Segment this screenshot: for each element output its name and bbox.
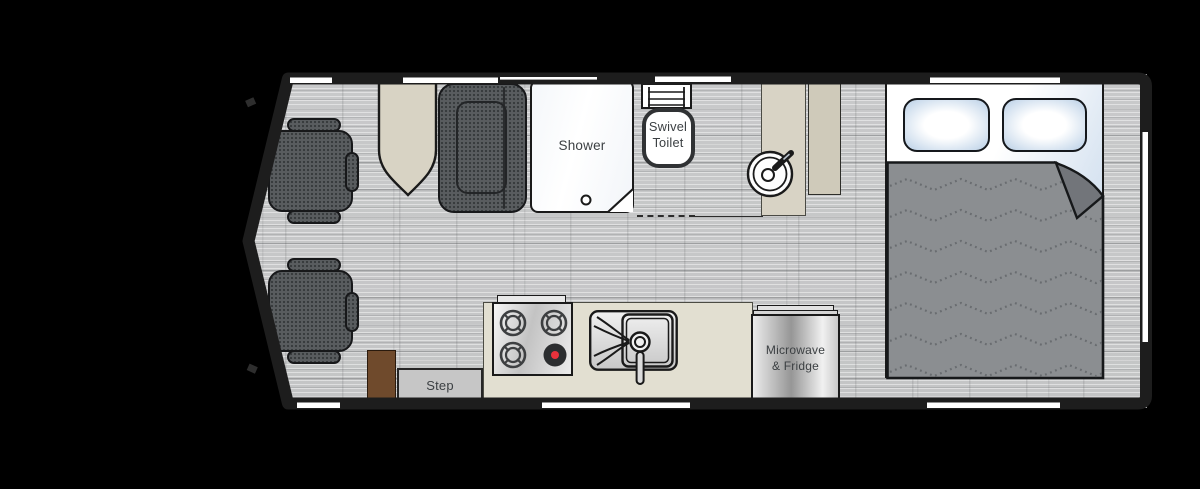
window-shower-sliver	[500, 77, 597, 80]
left-mirror-icon	[245, 97, 256, 107]
rear-door-opening	[1143, 132, 1149, 342]
window-bed-top	[930, 78, 1060, 84]
van-wall	[249, 79, 1147, 404]
window-front-bottom	[297, 403, 340, 409]
entry-door-opening	[542, 403, 690, 409]
right-mirror-icon	[247, 364, 258, 374]
window-dinette-top	[403, 78, 498, 84]
window-bath-top	[655, 77, 731, 83]
window-bed-bottom	[927, 403, 1060, 409]
window-front-top	[290, 78, 332, 84]
hull-overlay	[0, 0, 1200, 489]
floorplan-stage: Shower Swivel Toilet	[0, 0, 1200, 489]
